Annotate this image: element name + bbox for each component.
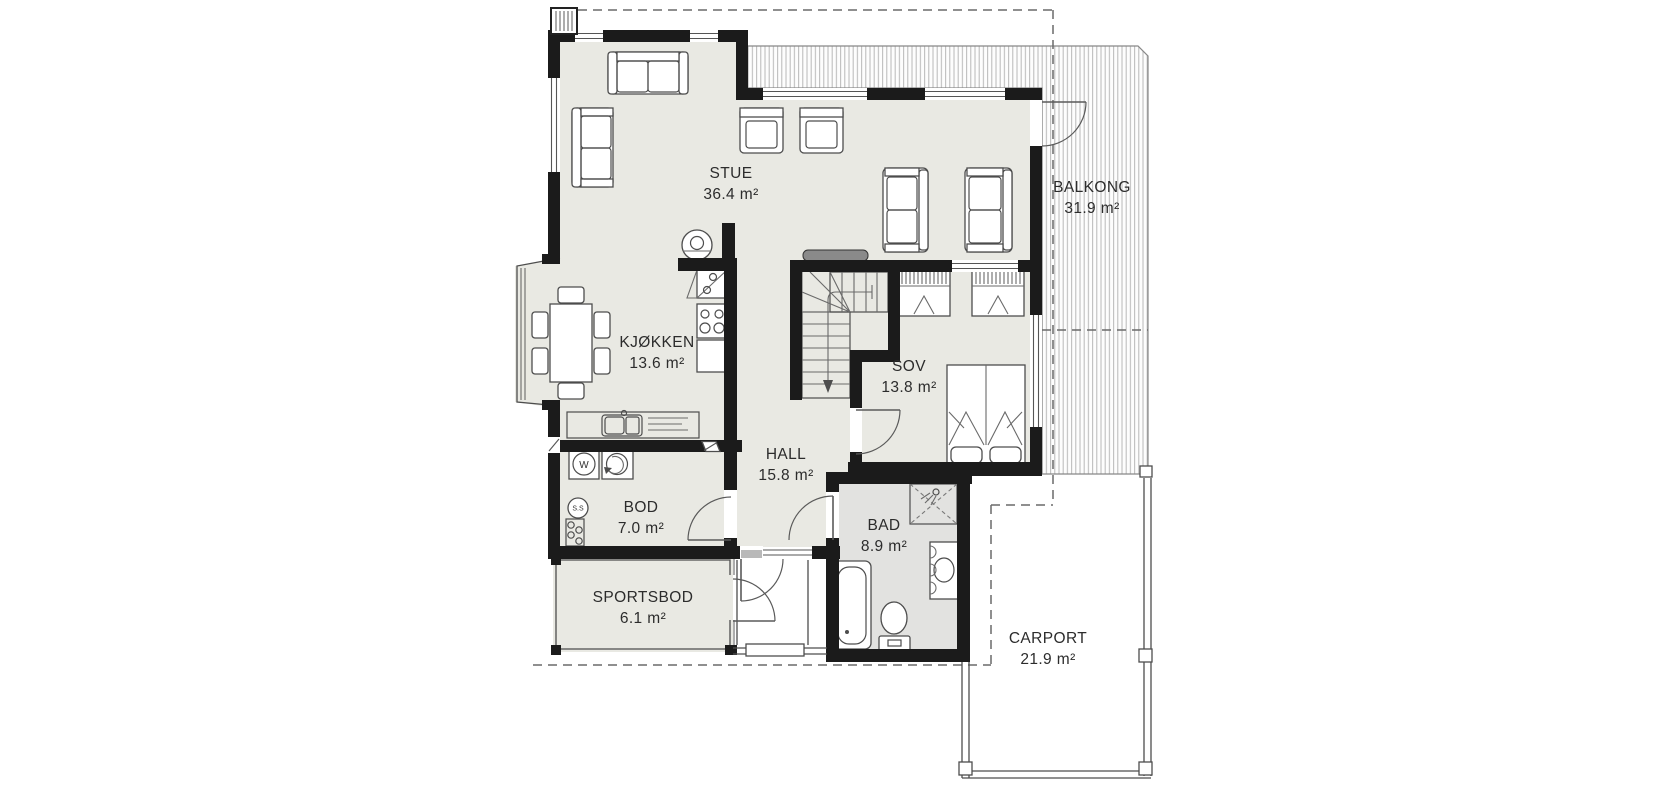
room-label-carport: CARPORT 21.9 m² [1009,630,1087,668]
svg-text:BALKONG: BALKONG [1053,179,1131,196]
window-icon [763,547,812,558]
svg-text:BAD: BAD [867,517,900,534]
svg-text:CARPORT: CARPORT [1009,630,1087,647]
svg-text:SPORTSBOD: SPORTSBOD [593,589,694,606]
washing-machine-icon: W [569,449,599,479]
cooktop-icon [697,304,727,338]
sportsbod-door-icon [733,579,775,621]
svg-text:36.4 m²: 36.4 m² [703,186,758,203]
floorplan-page: W S.S [0,0,1670,800]
sofa-icon [608,52,688,94]
svg-text:SOV: SOV [892,358,926,375]
carport-outline [959,466,1152,778]
washing-machine-label: W [579,460,589,471]
svg-text:6.1 m²: 6.1 m² [620,610,666,627]
floor-drain-icon: S.S [568,498,588,518]
kitchen-cabinet-icon [697,340,727,372]
window-icon [690,30,718,42]
sofa-icon [572,108,613,187]
svg-text:15.8 m²: 15.8 m² [758,467,813,484]
vent-icon [548,437,560,453]
wardrobe-icon [972,266,1024,316]
bed-icon [947,365,1025,463]
svg-text:8.9 m²: 8.9 m² [861,538,907,555]
chimney-icon [551,8,577,34]
armchair-icon [800,108,843,153]
svg-text:HALL: HALL [766,446,806,463]
window-icon [952,260,1018,272]
armchair-icon [740,108,783,153]
svg-text:7.0 m²: 7.0 m² [618,520,664,537]
sofa-icon [965,168,1012,252]
vent-icon [702,442,720,452]
floor-drain-label: S.S [572,506,584,513]
svg-text:31.9 m²: 31.9 m² [1064,200,1119,217]
svg-text:21.9 m²: 21.9 m² [1020,651,1075,668]
entry-door-icon [746,644,804,656]
sideboard-icon [803,250,868,261]
window-icon [1030,315,1042,427]
svg-text:13.8 m²: 13.8 m² [881,379,936,396]
wood-stove-icon [682,230,712,260]
svg-text:KJØKKEN: KJØKKEN [619,334,694,351]
sofa-icon [883,168,928,252]
svg-text:STUE: STUE [710,165,753,182]
window-icon [763,88,867,100]
bathroom-sink-icon [930,542,958,599]
floorplan-drawing: W S.S [0,0,1670,800]
svg-text:13.6 m²: 13.6 m² [629,355,684,372]
window-icon [548,78,560,172]
window-icon [925,88,1005,100]
hall-vestibule-door-icon [741,559,783,601]
window-icon [575,30,603,42]
dryer-icon [602,449,633,479]
svg-text:BOD: BOD [624,499,659,516]
wardrobe-icon [898,266,950,316]
